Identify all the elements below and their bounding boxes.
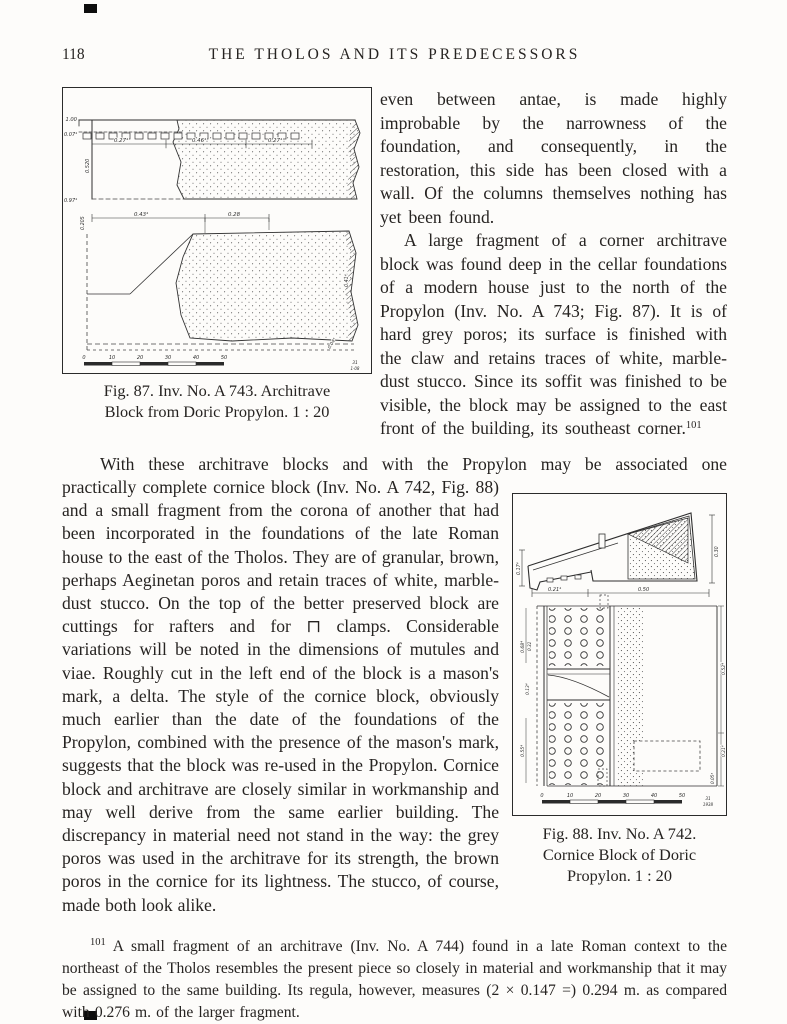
svg-text:0: 0 [540,793,543,799]
dim-label: 0.27⁴ [268,137,283,144]
dim-label: 0.50 [638,587,649,593]
paragraph-lead-line: With these architrave blocks and with th… [62,453,727,477]
dim-label: 0.21⁴ [721,745,727,757]
dim-label: 0.52⁴ [721,663,727,675]
svg-text:40: 40 [193,355,199,361]
paragraph: even between antae, is made highly impro… [380,88,727,229]
svg-text:20: 20 [595,793,601,799]
dim-label: 0.32 [527,641,532,651]
footnote-marker: 101 [90,937,106,948]
dim-label: 0.13⁴ [525,683,531,695]
guttae-grid-lower [549,703,609,785]
figure-88-caption: Fig. 88. Inv. No. A 742. Cornice Block o… [512,823,727,886]
dim-label: 0.97⁴ [64,198,77,204]
svg-text:10: 10 [109,355,115,361]
dim-label: 0.520 [85,159,91,173]
svg-text:40: 40 [651,793,657,799]
running-title: THE THOLOS AND ITS PREDECESSORS [62,46,727,64]
figure-87-drawing: 1.00 0.07⁴ 0.27⁴ 0.46⁴ 0.27⁴ 0.520 0.97⁴ [62,87,372,374]
dim-label: 0.41⁴ [344,274,350,287]
dim-label: 0.28 [228,212,241,218]
dim-label: 0.55⁴ [520,745,526,757]
paragraph-text: A large fragment of a corner architrave … [380,230,727,438]
paragraph: A large fragment of a corner architrave … [380,229,727,441]
dim-label: 0.07⁴ [64,132,77,138]
plate-mark: 1·08 [351,366,360,371]
dim-label: 0.46⁴ [192,137,207,144]
book-page: 118 THE THOLOS AND ITS PREDECESSORS [0,0,787,1024]
footnote-paragraph: 101 A small fragment of an architrave (I… [62,936,727,1024]
page-number: 118 [62,46,85,64]
figure-88-caption-line3: Propylon. 1 : 20 [512,865,727,886]
svg-text:10: 10 [567,793,573,799]
figure-87-caption-line1: Fig. 87. Inv. No. A 743. Architrave [62,381,372,402]
footnote-reference: 101 [686,420,702,431]
figure-88-caption-line2: Cornice Block of Doric [512,844,727,865]
footnote-text: A small fragment of an architrave (Inv. … [62,938,727,1021]
figure87-and-text-row: 1.00 0.07⁴ 0.27⁴ 0.46⁴ 0.27⁴ 0.520 0.97⁴ [62,87,727,441]
body-with-figure88: 0.17⁴ 0.21⁴ 0.50 0.30 [62,476,727,917]
figure-88-drawing: 0.17⁴ 0.21⁴ 0.50 0.30 [512,493,727,816]
footnote: 101 A small fragment of an architrave (I… [62,936,727,1024]
figure-87-caption-line2: Block from Doric Propylon. 1 : 20 [62,402,372,423]
right-text-column: even between antae, is made highly impro… [380,87,727,441]
dim-label: 1.00 [65,117,77,123]
svg-text:0: 0 [82,355,85,361]
page-header: 118 THE THOLOS AND ITS PREDECESSORS [62,0,727,70]
svg-text:20: 20 [137,355,143,361]
dim-label: 0.17⁴ [516,562,522,575]
dim-label: 0.21⁴ [548,587,561,593]
dim-label: 0.27⁴ [114,137,129,144]
plate-mark: 1938 [703,802,714,807]
svg-text:30: 30 [165,355,171,361]
svg-text:50: 50 [679,793,685,799]
dim-label: 0.68⁴ [520,641,526,653]
dim-label: 0.30 [714,546,720,557]
figure-87-block: 1.00 0.07⁴ 0.27⁴ 0.46⁴ 0.27⁴ 0.520 0.97⁴ [62,87,372,441]
figure-88-block: 0.17⁴ 0.21⁴ 0.50 0.30 [512,476,727,886]
plate-mark: 31 [705,796,711,801]
figure-88-caption-line1: Fig. 88. Inv. No. A 742. [512,823,727,844]
svg-text:50: 50 [221,355,227,361]
dim-label: 0.205 [80,216,86,230]
figure-87-caption: Fig. 87. Inv. No. A 743. Architrave Bloc… [62,381,372,422]
dim-label: 0.43⁴ [134,211,149,218]
rafter-cutting-dashed [634,741,700,771]
svg-text:30: 30 [623,793,629,799]
guttae-grid-upper [549,608,609,666]
dim-label: 0.05⁴ [710,773,715,784]
page-content: 118 THE THOLOS AND ITS PREDECESSORS [62,0,727,1024]
